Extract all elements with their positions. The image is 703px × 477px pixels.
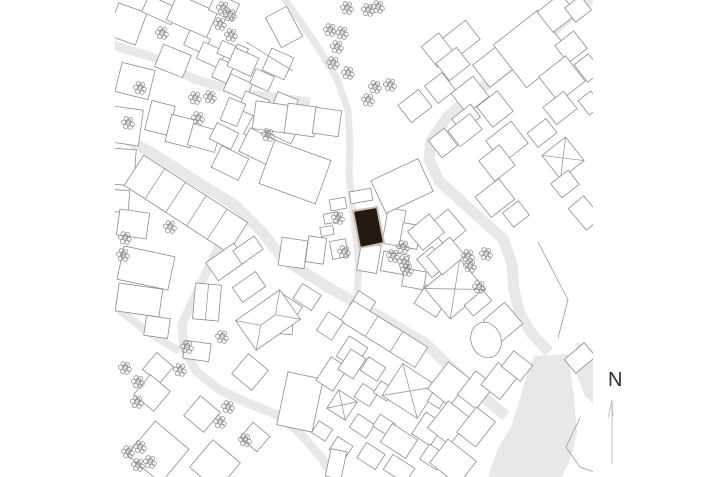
tree-icon: [216, 331, 229, 344]
building-outline: [357, 442, 385, 469]
tree-icon: [342, 67, 355, 80]
building-outline: [382, 364, 438, 419]
tree-icon: [214, 18, 227, 31]
tree-icon: [324, 24, 337, 37]
building-outline: [371, 159, 433, 214]
tree-icon: [372, 1, 385, 14]
building-outline: [542, 137, 584, 179]
tree-icon: [119, 362, 132, 375]
tree-icon: [362, 4, 375, 17]
tree-icon: [204, 91, 217, 104]
tree-icon: [384, 79, 397, 92]
tree-icon: [222, 401, 235, 414]
building-outline: [527, 119, 557, 148]
building-outline: [115, 283, 162, 317]
tree-icon: [164, 221, 177, 234]
north-indicator: N: [598, 366, 638, 476]
tree-icon: [225, 29, 238, 42]
building-outline: [252, 101, 290, 133]
tree-icon: [189, 92, 202, 105]
building-outline: [327, 390, 357, 420]
building-outline: [232, 354, 269, 391]
site-plan-figure: N: [0, 0, 703, 477]
tree-icon: [132, 376, 145, 389]
tree-icon: [174, 364, 187, 377]
tree-icon: [362, 94, 375, 107]
tree-icon: [156, 27, 169, 40]
tree-icon: [341, 2, 354, 15]
building-outline: [316, 312, 343, 340]
building-outline: [190, 440, 241, 477]
building-outline: [278, 237, 308, 268]
building-outline: [109, 106, 144, 146]
building-outline: [232, 272, 265, 303]
north-arrow-icon: [598, 392, 628, 476]
building-outline: [107, 3, 147, 45]
building-outline: [383, 454, 415, 477]
wall-line: [538, 242, 568, 338]
building-outline: [568, 196, 601, 230]
building-outline: [543, 91, 577, 124]
building-outline: [323, 212, 339, 224]
tree-icon: [131, 396, 144, 409]
tree-icon: [331, 41, 344, 54]
building-outline: [184, 396, 221, 433]
building-outline: [349, 414, 374, 438]
tree-icon: [480, 248, 493, 261]
tree-icon: [336, 27, 349, 40]
north-label: N: [608, 370, 623, 390]
building-outline: [578, 91, 602, 115]
building-outline: [305, 236, 326, 264]
building-outline: [325, 449, 346, 477]
building-outline: [354, 383, 378, 406]
building-outline: [311, 421, 332, 441]
building-outline: [430, 439, 477, 477]
building-outline: [398, 89, 432, 122]
building-outline: [144, 315, 171, 338]
building-outline: [320, 225, 334, 236]
building-outline: [551, 170, 579, 198]
building-outline: [329, 197, 347, 211]
tree-icon: [192, 112, 205, 125]
tree-icon: [369, 81, 382, 94]
building-outline: [312, 107, 341, 136]
building-outline: [192, 283, 221, 321]
building-outline: [115, 62, 155, 99]
